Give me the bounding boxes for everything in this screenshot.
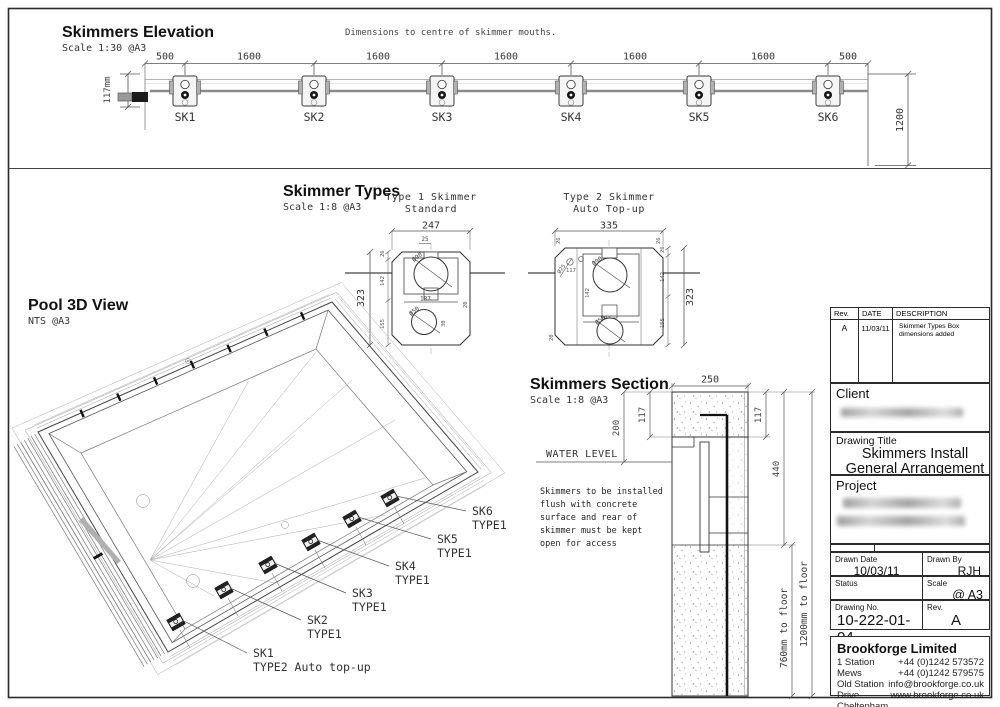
types-scale: Scale 1:8 @A3 [283,202,361,213]
rev-value-big: A [923,612,989,629]
inlet-fitting-dark [132,92,148,102]
type1-top-offset: 25 [421,236,429,243]
elevation-scale: Scale 1:30 @A3 [62,43,146,54]
type2-corner-right: 26 [656,237,662,244]
label-sk2: SK2 [304,110,325,124]
drawing-title-box: Drawing Title Skimmers Install General A… [830,432,990,475]
type2-heading-1: Type 2 Skimmer [563,192,654,203]
section-title: Skimmers Section [530,376,669,393]
drawn-date-label: Drawn Date [831,553,922,564]
type1-drawing: Ø90 187 20 Ø50 30 247 25 323 [356,221,473,357]
pool3d-title: Pool 3D View [28,297,129,314]
dim-117mm: 117mm [103,76,113,103]
far-wall-fittings [81,312,305,417]
section-scale: Scale 1:8 @A3 [530,395,608,406]
note-line-3: surface and rear of [540,513,637,523]
pool-label-sk5: SK5 [437,532,458,546]
company-phone-1: +44 (0)1242 573572 [888,657,984,668]
dim-500-left: 500 [156,52,174,63]
water-level-label: WATER LEVEL [546,449,618,460]
rev-value: A [831,320,858,333]
rev-label: Rev. [923,601,989,612]
elevation-note: Dimensions to centre of skimmer mouths. [345,28,556,38]
pool-label-sk1: SK1 [253,646,274,660]
label-sk1: SK1 [175,110,196,124]
label-sk5: SK5 [689,110,710,124]
type1-seg2: 142 [380,276,386,286]
elevation-left-dim: 117mm [103,71,148,110]
project-line-2-redacted [837,516,965,526]
section-width-dim: 250 [701,375,719,386]
pool-label-sk4: SK4 [395,559,416,573]
pool-label-sk2: SK2 [307,613,328,627]
rev-description-value: Skimmer Types Box dimensions added [893,320,989,339]
elevation-right-dim [868,71,916,169]
type1-width-dim: 247 [422,221,440,232]
drawn-by-label: Drawn By [923,553,989,564]
note-line-4: skimmer must be kept [540,526,642,536]
section-440-dim: 440 [772,461,782,477]
dim-1600-3: 1600 [494,52,518,63]
section-wall [672,392,748,696]
type1-heading-1: Type 1 Skimmer [385,192,476,203]
section-note: Skimmers to be installed flush with conc… [540,487,663,549]
type2-seg2: 142 [660,272,666,282]
project-box: Project [830,475,990,544]
status-row: Status Scale @ A3 [830,576,990,600]
type1-side-dim: 20 [463,301,469,308]
description-col-header: DESCRIPTION [893,308,989,320]
company-email: info@brookforge.co.uk [888,679,984,690]
drawn-row: Drawn Date 10/03/11 Drawn By RJH [830,552,990,576]
type1-seg1: 26 [380,250,386,257]
type2-corner-left: 26 [556,237,562,244]
type2-width-dim: 335 [600,221,618,232]
pool-label-sk6: SK6 [472,504,493,518]
section-to-water-dim: 200 [612,420,622,436]
pool-label-sk6-type: TYPE1 [472,518,507,532]
dim-1600-2: 1600 [366,52,390,63]
type2-inner-height: 142 [585,288,591,298]
type2-side-dim: 20 [549,334,555,341]
dim-1200: 1200 [895,108,906,132]
client-name-redacted [841,408,963,417]
client-label: Client [831,384,989,401]
company-address-3: Cheltenham [837,701,888,707]
note-line-5: open for access [540,539,617,549]
pool-floor-pipes [137,352,426,596]
title-block-strip [830,544,990,552]
company-address-2: Old Station Drive [837,679,888,701]
label-sk3: SK3 [432,110,453,124]
pool-label-sk4-type: TYPE1 [395,573,430,587]
company-box: Brookforge Limited 1 Station Mews Old St… [830,636,990,696]
elevation-wall-lines [145,80,868,92]
pool-rim [38,302,478,652]
type1-seg3: 155 [380,319,386,329]
type2-height-dim: 323 [685,288,696,306]
company-phone-2: +44 (0)1242 579575 [888,668,984,679]
type2-seg1: 26 [660,246,666,253]
scale-label: Scale [923,577,989,588]
pool-label-sk1-type: TYPE2 Auto top-up [253,660,371,674]
elevation-dim-chain [142,61,871,167]
drawing-title-label: Drawing Title [831,433,989,447]
type2-mouth-height: 117 [566,268,576,274]
pool-label-sk2-type: TYPE1 [307,627,342,641]
section-lip-right-dim: 117 [754,407,764,423]
company-address-1: 1 Station Mews [837,657,888,679]
dim-1600-5: 1600 [751,52,775,63]
pool-label-sk3: SK3 [352,586,373,600]
revision-table: Rev. A DATE 11/03/11 DESCRIPTION Skimmer… [830,307,990,383]
type1-inner-width: 187 [420,296,431,303]
drawing-sheet: Skimmers Elevation Scale 1:30 @A3 Dimens… [0,0,1000,707]
project-label: Project [831,476,989,493]
type1-drain-offset: 30 [441,320,447,327]
status-label: Status [831,577,922,588]
section-1200-dim: 1200mm to floor [799,561,810,647]
type2-drawing: Ø90 Ø25 117 187 Ø50 20 142 335 26 26 [549,221,696,358]
type1-heading-2: Standard [405,204,457,215]
label-sk6: SK6 [818,110,839,124]
pool3d-scale: NTS @A3 [28,316,70,327]
elevation-title: Skimmers Elevation [62,24,214,41]
company-name: Brookforge Limited [831,637,989,657]
dim-1600-1: 1600 [237,52,261,63]
section-760-dim: 760mm to floor [779,588,790,668]
skimmers-elevation-view: Skimmers Elevation Scale 1:30 @A3 Dimens… [62,24,916,169]
type1-height-dim: 323 [356,289,367,307]
section-lip-left-dim: 117 [638,407,648,423]
pool-label-sk5-type: TYPE1 [437,546,472,560]
dim-1600-4: 1600 [623,52,647,63]
note-line-2: flush with concrete [540,500,637,510]
rev-col-header: Rev. [831,308,858,320]
dim-500-right: 500 [839,52,857,63]
drawing-no-row: Drawing No. 10-222-01-04 Rev. A [830,600,990,630]
type2-seg3: 155 [660,318,666,328]
client-box: Client [830,383,990,432]
company-website: www.brookforge.co.uk [888,690,984,701]
skimmers-section-view: Skimmers Section Scale 1:8 @A3 WATER LEV… [530,375,815,700]
drawing-no-label: Drawing No. [831,601,922,612]
date-col-header: DATE [859,308,892,320]
type2-heading-2: Auto Top-up [573,204,645,215]
types-title: Skimmer Types [283,183,400,200]
project-line-1-redacted [843,498,961,508]
label-sk4: SK4 [561,110,582,124]
rev-date-value: 11/03/11 [859,320,892,333]
drawing-title-line-1: Skimmers Install [841,447,989,462]
note-line-1: Skimmers to be installed [540,487,663,497]
pool-label-sk3-type: TYPE1 [352,600,387,614]
inlet-fitting-gray [118,93,132,101]
